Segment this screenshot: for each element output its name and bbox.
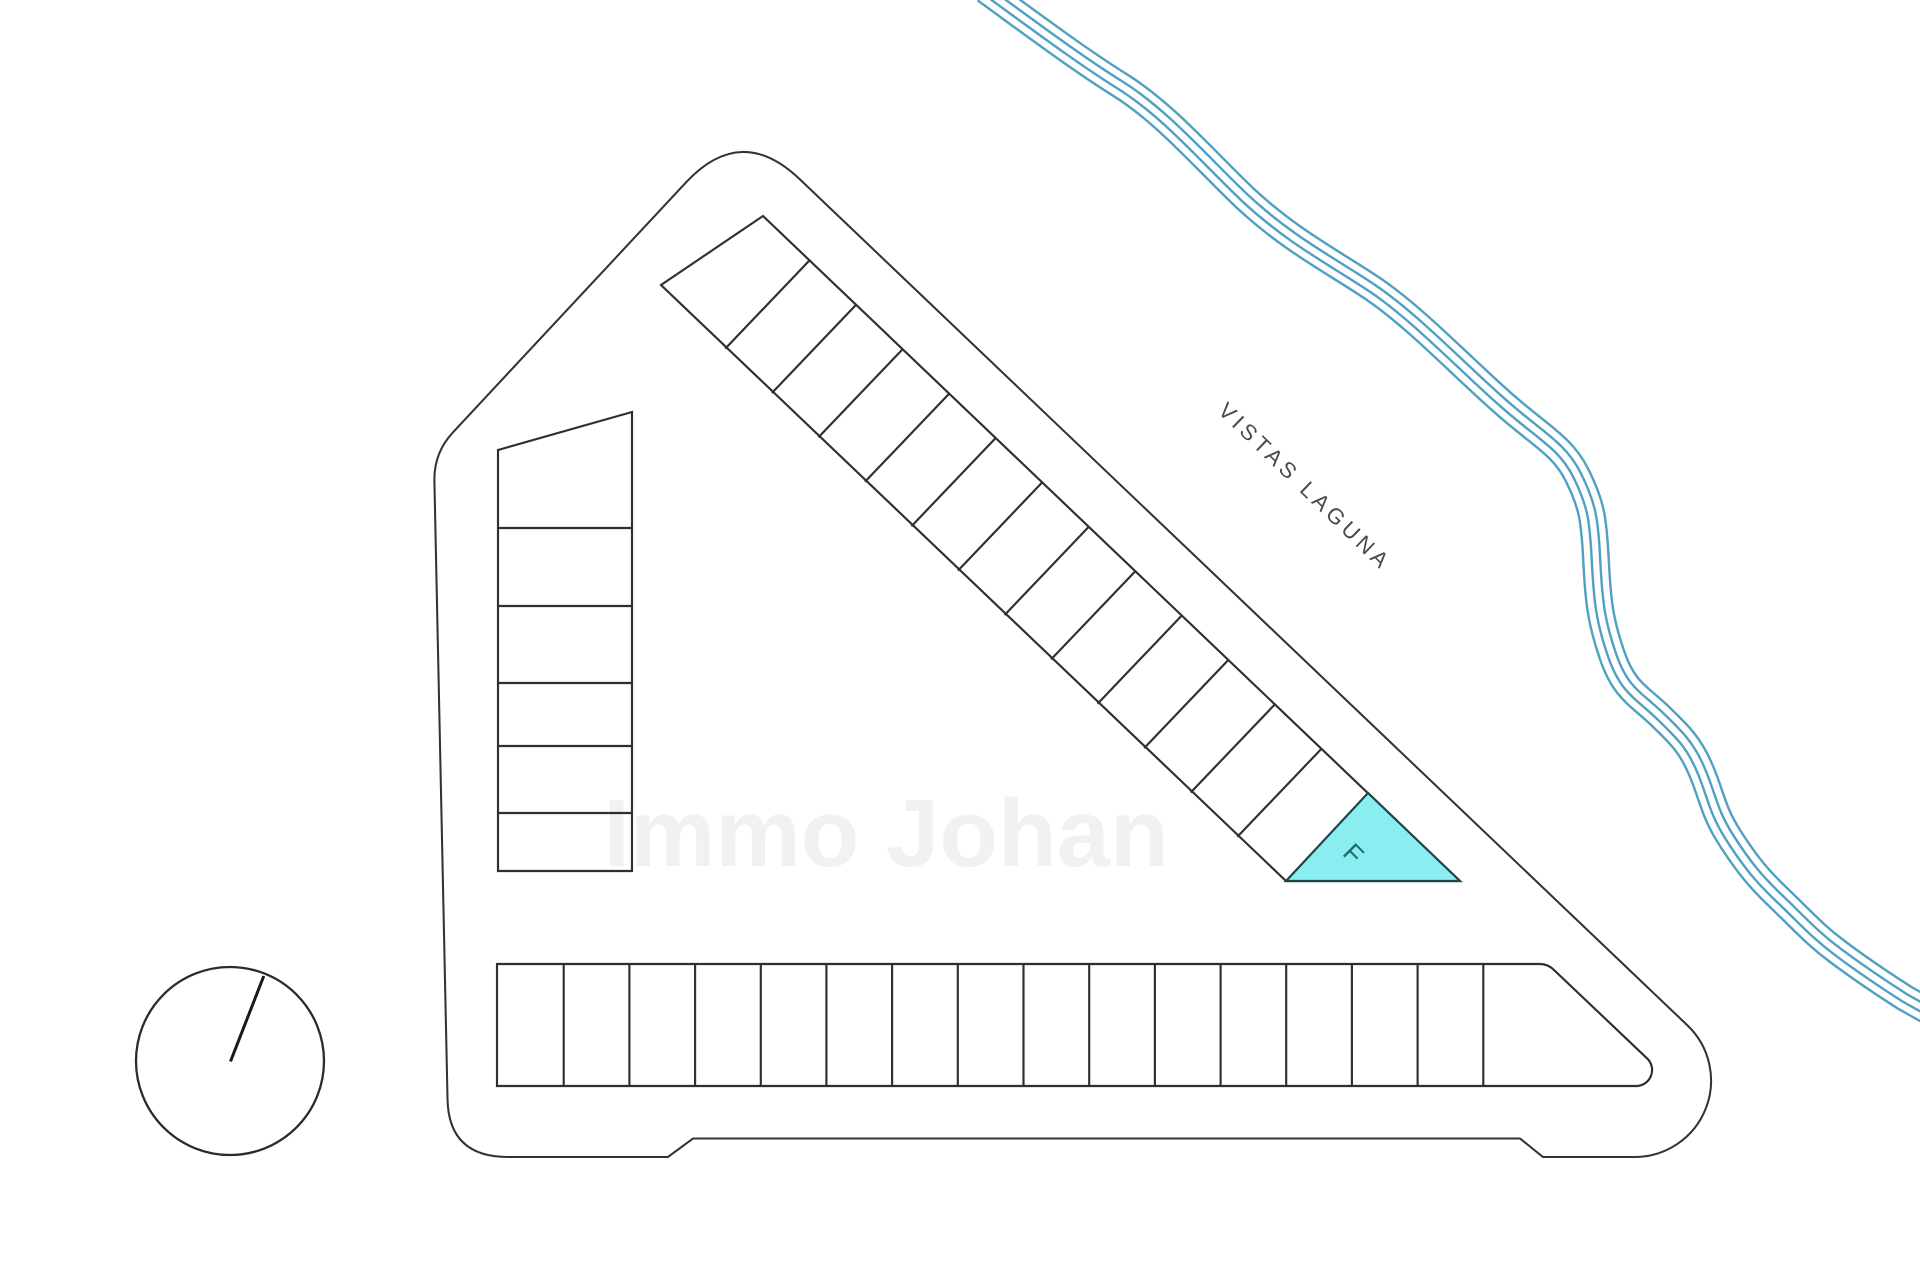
svg-text:VISTAS LAGUNA: VISTAS LAGUNA xyxy=(1214,398,1397,576)
svg-text:Immo Johan: Immo Johan xyxy=(603,780,1168,887)
